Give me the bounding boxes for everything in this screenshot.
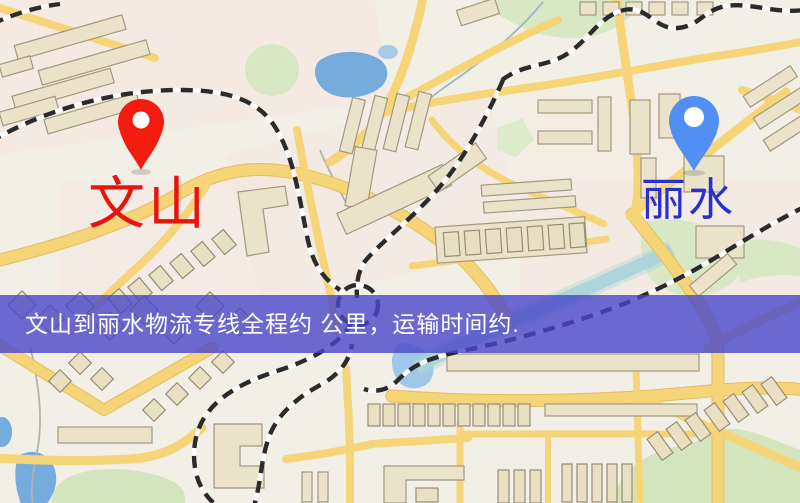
destination-label: 丽水 — [641, 177, 735, 222]
origin-label: 文山 — [88, 176, 208, 233]
map-canvas — [0, 0, 800, 503]
map-screenshot: 文山 丽水 文山到丽水物流专线全程约 公里，运输时间约. — [0, 0, 800, 503]
route-info-banner: 文山到丽水物流专线全程约 公里，运输时间约. — [0, 295, 800, 353]
route-info-text: 文山到丽水物流专线全程约 公里，运输时间约. — [0, 295, 800, 353]
